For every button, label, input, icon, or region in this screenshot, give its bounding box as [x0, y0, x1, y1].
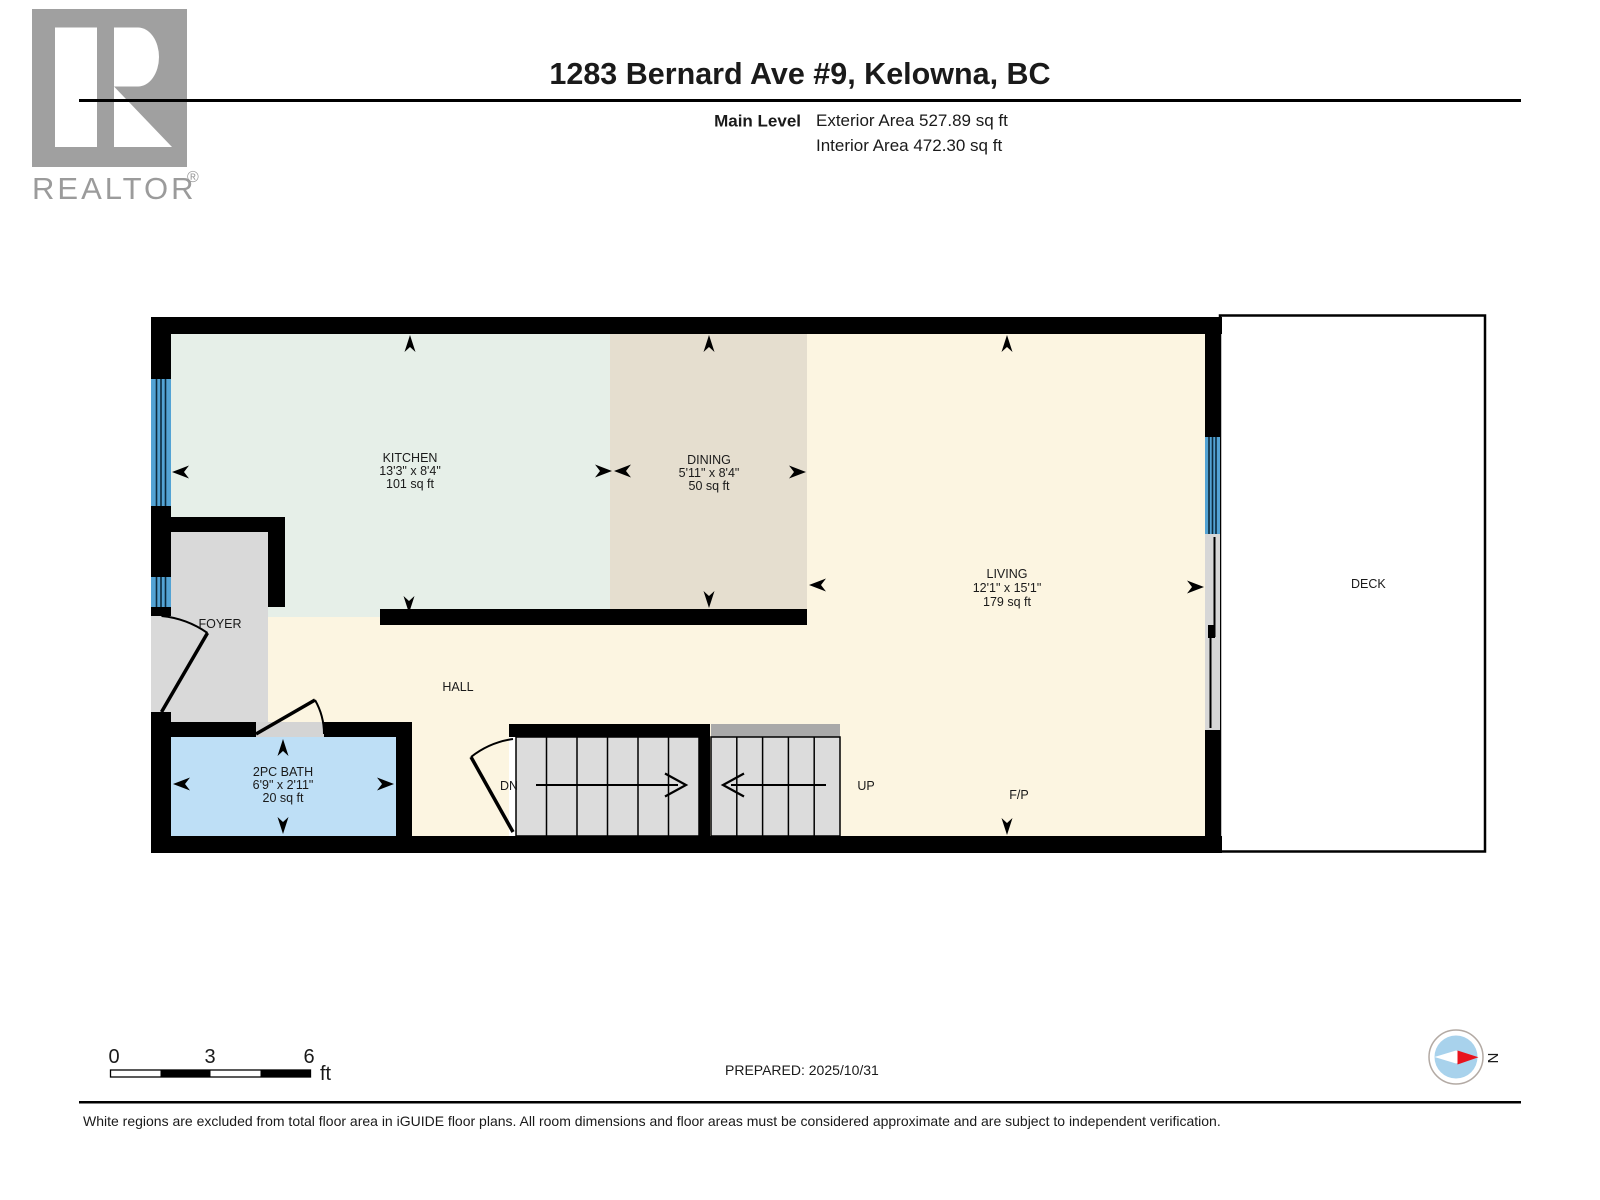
svg-text:2PC BATH: 2PC BATH: [253, 765, 313, 779]
svg-text:Exterior Area 527.89 sq ft: Exterior Area 527.89 sq ft: [816, 111, 1008, 130]
svg-text:Interior Area 472.30 sq ft: Interior Area 472.30 sq ft: [816, 136, 1002, 155]
svg-text:DN: DN: [500, 779, 518, 793]
svg-text:1283 Bernard Ave #9, Kelowna,: 1283 Bernard Ave #9, Kelowna, BC: [549, 57, 1050, 91]
svg-text:Main Level: Main Level: [714, 112, 801, 131]
svg-text:KITCHEN: KITCHEN: [383, 451, 438, 465]
svg-text:101 sq ft: 101 sq ft: [386, 477, 434, 491]
svg-text:REALTOR: REALTOR: [32, 171, 197, 206]
svg-text:PREPARED: 2025/10/31: PREPARED: 2025/10/31: [725, 1062, 879, 1078]
svg-text:HALL: HALL: [442, 680, 473, 694]
svg-text:F/P: F/P: [1009, 788, 1028, 802]
svg-text:UP: UP: [857, 779, 874, 793]
svg-text:13'3" x 8'4": 13'3" x 8'4": [379, 464, 441, 478]
svg-text:50 sq ft: 50 sq ft: [689, 479, 731, 493]
svg-text:LIVING: LIVING: [987, 567, 1028, 581]
svg-text:ft: ft: [320, 1063, 332, 1085]
svg-text:3: 3: [204, 1046, 215, 1068]
svg-text:12'1" x 15'1": 12'1" x 15'1": [973, 581, 1042, 595]
svg-text:DECK: DECK: [1351, 577, 1386, 591]
svg-text:N: N: [1484, 1053, 1501, 1064]
svg-text:179 sq ft: 179 sq ft: [983, 595, 1031, 609]
svg-text:0: 0: [108, 1046, 119, 1068]
svg-text:6'9" x 2'11": 6'9" x 2'11": [253, 778, 314, 792]
svg-text:FOYER: FOYER: [198, 617, 241, 631]
svg-text:White regions are excluded fro: White regions are excluded from total fl…: [83, 1113, 1221, 1129]
svg-text:5'11" x 8'4": 5'11" x 8'4": [679, 466, 740, 480]
svg-text:6: 6: [303, 1046, 314, 1068]
svg-text:DINING: DINING: [687, 453, 731, 467]
svg-text:®: ®: [187, 169, 199, 186]
svg-text:20 sq ft: 20 sq ft: [263, 791, 305, 805]
